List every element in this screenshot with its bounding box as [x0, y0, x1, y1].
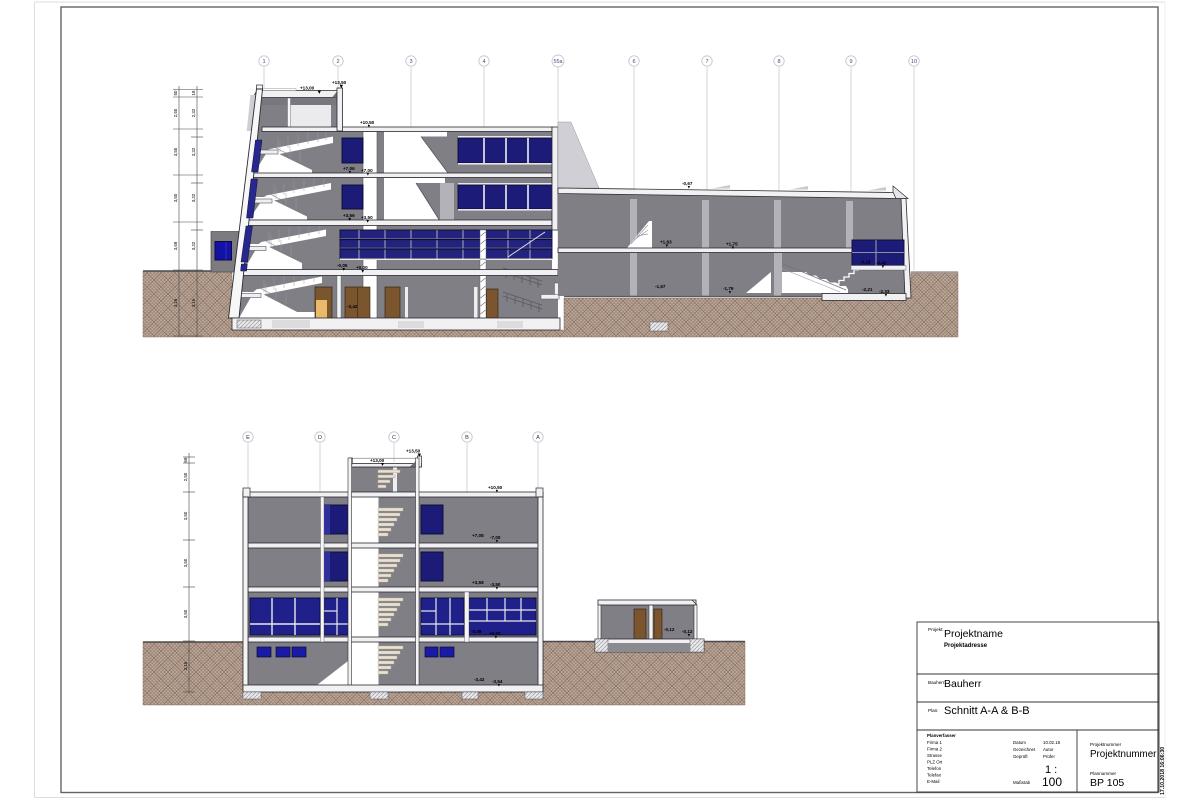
svg-text:+0,00: +0,00	[356, 265, 368, 270]
svg-text:Geprüft: Geprüft	[1013, 754, 1028, 759]
svg-text:-0,42: -0,42	[876, 261, 887, 266]
svg-text:3,32: 3,32	[191, 147, 196, 156]
svg-text:Projektadresse: Projektadresse	[944, 643, 988, 649]
svg-text:Autor: Autor	[1043, 747, 1054, 752]
svg-text:3,16: 3,16	[191, 298, 196, 307]
svg-text:3,50: 3,50	[173, 147, 178, 156]
svg-text:PLZ Ort: PLZ Ort	[927, 760, 943, 765]
svg-text:3: 3	[409, 59, 412, 65]
svg-text:-3,42: -3,42	[347, 304, 358, 309]
svg-text:Maßstab: Maßstab	[1013, 780, 1031, 785]
svg-text:-1,67: -1,67	[655, 284, 666, 289]
svg-text:-0,18: -0,18	[860, 260, 871, 265]
svg-text:+13,00: +13,00	[370, 458, 385, 463]
svg-text:Bauherr: Bauherr	[944, 678, 982, 690]
svg-text:BP 105: BP 105	[1090, 777, 1124, 789]
svg-text:A: A	[536, 435, 540, 441]
svg-text:8: 8	[777, 59, 780, 65]
svg-text:2,32: 2,32	[191, 108, 196, 117]
svg-text:Firma 1: Firma 1	[927, 740, 942, 745]
svg-text:2,50: 2,50	[173, 108, 178, 117]
svg-text:3,50: 3,50	[173, 193, 178, 202]
svg-text:+10,50: +10,50	[488, 485, 503, 490]
svg-text:18: 18	[191, 90, 196, 95]
svg-text:3,68: 3,68	[173, 241, 178, 250]
svg-text:9: 9	[849, 59, 852, 65]
svg-text:+10,50: +10,50	[360, 120, 375, 125]
svg-text:10.02.18: 10.02.18	[1043, 740, 1061, 745]
svg-text:3,16: 3,16	[173, 298, 178, 307]
svg-text:10: 10	[911, 59, 917, 65]
svg-text:Schnitt A-A & B-B: Schnitt A-A & B-B	[944, 705, 1030, 717]
svg-text:-0,12: -0,12	[682, 629, 693, 634]
svg-text:+7,08: +7,08	[472, 533, 484, 538]
svg-text:Telefon: Telefon	[927, 766, 942, 771]
svg-text:-0,05: -0,05	[337, 263, 348, 268]
svg-text:Prüfer: Prüfer	[1043, 754, 1055, 759]
svg-text:Projektnummer: Projektnummer	[1090, 742, 1122, 747]
svg-text:-3,54: -3,54	[492, 679, 503, 684]
svg-text:+3,50: +3,50	[361, 215, 373, 220]
svg-text:Datum: Datum	[1013, 740, 1026, 745]
svg-text:+13,50: +13,50	[406, 449, 421, 454]
svg-text:1: 1	[262, 59, 265, 65]
svg-text:2: 2	[336, 59, 339, 65]
svg-text:55a: 55a	[554, 59, 563, 65]
svg-text:E: E	[246, 435, 250, 441]
svg-text:E-Mail: E-Mail	[927, 779, 939, 784]
svg-text:+3,56: +3,56	[343, 213, 355, 218]
svg-text:-0,12: -0,12	[664, 627, 675, 632]
svg-text:Bauherr:: Bauherr:	[928, 680, 946, 685]
svg-text:50: 50	[173, 90, 178, 95]
svg-text:Plan:: Plan:	[928, 708, 938, 713]
svg-text:17.10.2018 16:06:30: 17.10.2018 16:06:30	[1160, 747, 1166, 795]
svg-text:Telefax: Telefax	[927, 773, 942, 778]
svg-text:6: 6	[632, 59, 635, 65]
svg-text:Plannummer: Plannummer	[1090, 771, 1117, 776]
svg-text:D: D	[318, 435, 322, 441]
svg-text:+1,75: +1,75	[726, 242, 738, 247]
svg-text:C: C	[392, 435, 396, 441]
svg-text:-3,50: -3,50	[490, 582, 501, 587]
svg-text:Projektnummer: Projektnummer	[1090, 749, 1157, 760]
svg-text:Gezeichnet: Gezeichnet	[1013, 747, 1036, 752]
svg-text:3,32: 3,32	[191, 193, 196, 202]
svg-text:3,32: 3,32	[191, 241, 196, 250]
svg-text:+7,06: +7,06	[343, 166, 355, 171]
svg-text:3,50: 3,50	[183, 609, 188, 618]
svg-text:Strasse: Strasse	[927, 753, 942, 758]
svg-text:68: 68	[183, 457, 188, 462]
svg-text:+3,58: +3,58	[472, 580, 484, 585]
svg-text:+7,00: +7,00	[361, 168, 373, 173]
svg-text:+0,00: +0,00	[489, 631, 501, 636]
svg-text:B: B	[465, 435, 469, 441]
svg-text:-2,21: -2,21	[862, 287, 873, 292]
svg-text:+13,50: +13,50	[332, 80, 347, 85]
svg-text:-3,42: -3,42	[474, 677, 485, 682]
svg-text:3,50: 3,50	[183, 511, 188, 520]
svg-text:-1,79: -1,79	[723, 286, 734, 291]
svg-text:7: 7	[705, 59, 708, 65]
svg-text:Planverfasser: Planverfasser	[927, 733, 956, 738]
svg-text:2,50: 2,50	[183, 472, 188, 481]
svg-text:Firma 2: Firma 2	[927, 747, 942, 752]
svg-text:-0,67: -0,67	[682, 181, 693, 186]
svg-text:-2,33: -2,33	[879, 289, 890, 294]
svg-text:100: 100	[1042, 775, 1062, 789]
svg-text:Projektname: Projektname	[944, 628, 1003, 640]
svg-text:Projekt:: Projekt:	[928, 627, 944, 632]
svg-text:-7,00: -7,00	[490, 535, 501, 540]
svg-text:3,50: 3,50	[183, 558, 188, 567]
svg-text:+1,83: +1,83	[660, 240, 672, 245]
svg-text:-0,08: -0,08	[471, 629, 482, 634]
svg-text:4: 4	[482, 59, 485, 65]
svg-text:+13,00: +13,00	[300, 86, 315, 91]
svg-text:3,16: 3,16	[183, 661, 188, 670]
